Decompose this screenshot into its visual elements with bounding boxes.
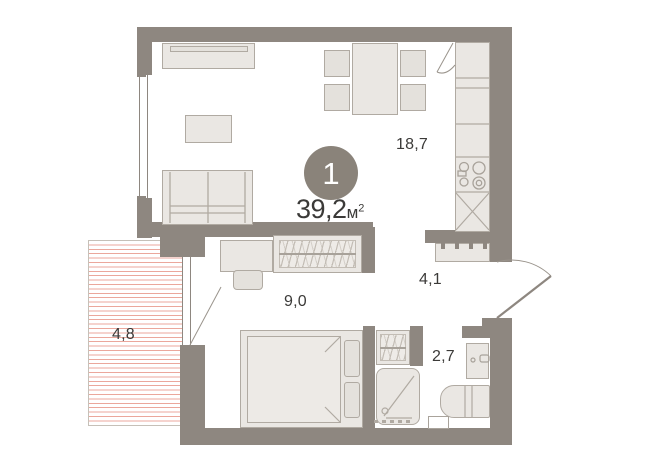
room-area-label-balcony: 4,8	[112, 326, 135, 344]
pillow	[344, 382, 360, 418]
entrance-door-swing	[497, 260, 551, 318]
unit-number-badge: 1	[304, 146, 358, 200]
rack-tick	[455, 243, 459, 249]
total-area-value: 39,2	[296, 194, 347, 224]
room-area-label-bedroom: 9,0	[284, 293, 307, 311]
dining-table	[352, 43, 398, 115]
rack-tick	[441, 243, 445, 249]
wall-closet-right	[410, 326, 423, 366]
dining-chair	[400, 50, 426, 77]
bath-closet-rod	[380, 347, 406, 349]
balcony-door-swing	[190, 287, 221, 345]
wall-top	[137, 27, 512, 42]
wall-bottom	[180, 428, 512, 445]
wall-right-lower	[490, 318, 512, 445]
wall-closet-left	[363, 326, 375, 428]
room-area-label-hallway: 4,1	[419, 271, 442, 289]
tv	[170, 46, 248, 52]
desk-chair	[233, 270, 263, 290]
dining-chair	[324, 84, 350, 111]
shower-track-dot	[390, 420, 394, 423]
total-area-unit: м	[347, 203, 359, 222]
wall-left-upper	[137, 27, 152, 75]
balcony-area	[88, 240, 183, 426]
bathtub	[440, 385, 490, 418]
kitchen-counter	[455, 42, 490, 232]
bed-blanket	[247, 336, 341, 423]
total-area: 39,2м2	[296, 194, 364, 225]
living-window	[139, 75, 148, 198]
dining-chair	[400, 84, 426, 111]
shower-track-dot	[382, 420, 386, 423]
wall-right-upper	[490, 27, 512, 250]
wall-bathroom-top	[462, 326, 490, 338]
pillow	[344, 340, 360, 377]
room-area-label-kitchen: 18,7	[396, 136, 428, 154]
total-area-sup: 2	[358, 203, 364, 215]
sink	[466, 343, 489, 379]
shower-track-dot	[398, 420, 402, 423]
rack-tick	[469, 243, 473, 249]
shower-track-dot	[374, 420, 378, 423]
room-area-label-bathroom: 2,7	[432, 348, 455, 366]
wall-balcony-step	[160, 237, 205, 257]
toilet	[428, 416, 449, 429]
unit-number: 1	[322, 158, 339, 189]
fridge-door-swing	[437, 43, 455, 73]
wall-wardrobe-stub	[360, 227, 375, 273]
wardrobe-rod	[279, 253, 356, 255]
balcony-door-window	[182, 257, 191, 345]
dining-chair	[324, 50, 350, 77]
shower	[376, 368, 420, 425]
coffee-table	[185, 115, 232, 143]
shower-track-dot	[406, 420, 410, 423]
desk	[220, 240, 273, 272]
window-nub-bottom	[137, 196, 146, 203]
sofa	[162, 170, 253, 225]
floor-plan: 18,7 9,0 4,1 2,7 4,8 1 39,2м2	[0, 0, 654, 470]
rack-tick	[483, 243, 487, 249]
window-nub-top	[137, 70, 146, 77]
